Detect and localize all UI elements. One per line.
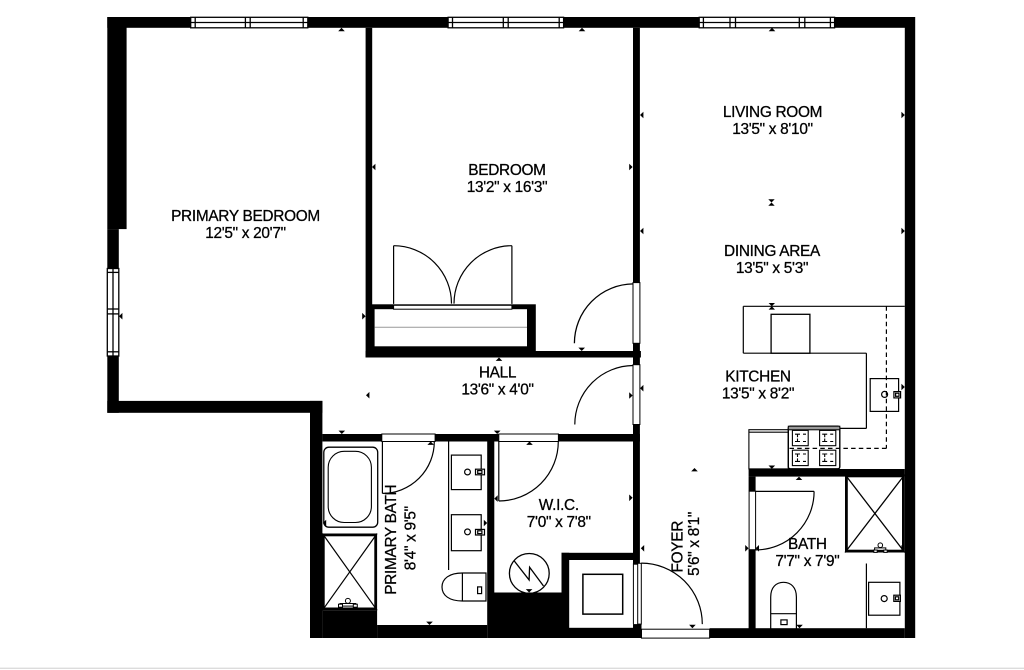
- svg-text:PRIMARY BATH: PRIMARY BATH: [383, 485, 400, 595]
- svg-text:BEDROOM: BEDROOM: [468, 162, 545, 179]
- svg-text:13'5" x 8'2": 13'5" x 8'2": [722, 386, 794, 403]
- svg-text:DINING AREA: DINING AREA: [724, 243, 821, 260]
- svg-text:HALL: HALL: [479, 365, 517, 382]
- svg-text:12'5" x 20'7": 12'5" x 20'7": [205, 225, 286, 242]
- svg-text:7'7" x 7'9": 7'7" x 7'9": [775, 553, 839, 570]
- svg-text:13'6" x 4'0": 13'6" x 4'0": [461, 382, 533, 399]
- svg-text:5'6" x 8'1": 5'6" x 8'1": [686, 512, 703, 576]
- svg-text:PRIMARY BEDROOM: PRIMARY BEDROOM: [171, 208, 320, 225]
- svg-text:W.I.C.: W.I.C.: [539, 497, 579, 514]
- svg-text:FOYER: FOYER: [670, 521, 687, 573]
- svg-text:7'0" x 7'8": 7'0" x 7'8": [527, 514, 591, 531]
- svg-text:BATH: BATH: [788, 536, 827, 553]
- svg-text:13'5" x 5'3": 13'5" x 5'3": [736, 260, 808, 277]
- svg-text:13'2" x 16'3": 13'2" x 16'3": [467, 179, 548, 196]
- svg-text:13'5" x 8'10": 13'5" x 8'10": [732, 121, 813, 138]
- svg-text:LIVING ROOM: LIVING ROOM: [723, 104, 822, 121]
- svg-text:8'4" x 9'5": 8'4" x 9'5": [402, 506, 419, 570]
- svg-text:KITCHEN: KITCHEN: [725, 369, 790, 386]
